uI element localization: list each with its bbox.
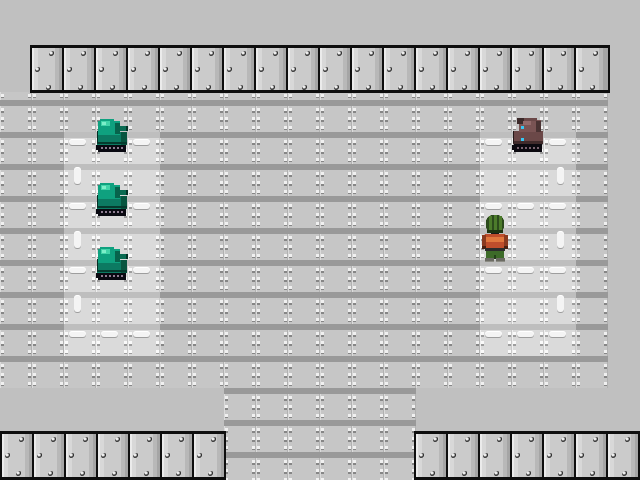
rivet-icon bbox=[165, 453, 171, 459]
rivet-icon bbox=[174, 85, 180, 91]
rivet-icon bbox=[558, 85, 564, 91]
floor-tile bbox=[384, 132, 416, 164]
floor-marking-horizontal bbox=[485, 139, 502, 145]
rivet-icon bbox=[209, 51, 215, 57]
floor-tile bbox=[576, 356, 608, 388]
floor-tile bbox=[352, 164, 384, 196]
rivet-icon bbox=[465, 437, 471, 443]
floor-tile bbox=[416, 132, 448, 164]
floor-tile bbox=[256, 132, 288, 164]
floor-tile bbox=[320, 100, 352, 132]
wall-panel bbox=[512, 434, 544, 477]
rivet-icon bbox=[179, 437, 185, 443]
floor-marking-horizontal bbox=[133, 139, 150, 145]
wall-panel bbox=[66, 434, 98, 477]
floor-tile bbox=[416, 228, 448, 260]
floor-tile-light bbox=[64, 324, 96, 356]
floor-tile-light bbox=[512, 292, 544, 324]
green-tank-sprite[interactable] bbox=[95, 245, 129, 281]
wall-panel bbox=[416, 48, 448, 90]
floor-tile bbox=[224, 260, 256, 292]
floor-tile bbox=[384, 452, 416, 480]
rivet-icon bbox=[78, 85, 84, 91]
floor-tile bbox=[576, 324, 608, 356]
floor-tile bbox=[192, 356, 224, 388]
wall-panel bbox=[2, 434, 34, 477]
rivet-icon bbox=[430, 85, 436, 91]
rivet-icon bbox=[241, 51, 247, 57]
floor-tile bbox=[384, 92, 416, 100]
floor-tile bbox=[256, 196, 288, 228]
rivet-icon bbox=[401, 51, 407, 57]
rivet-icon bbox=[133, 453, 139, 459]
floor-tile bbox=[224, 452, 256, 480]
floor-tile bbox=[224, 132, 256, 164]
floor-tile bbox=[256, 228, 288, 260]
floor-tile bbox=[480, 356, 512, 388]
floor-tile-light bbox=[512, 164, 544, 196]
wall-panel bbox=[160, 48, 192, 90]
rivet-icon bbox=[48, 471, 54, 477]
rivet-icon bbox=[163, 67, 169, 73]
wall-panel bbox=[96, 48, 128, 90]
floor-tile bbox=[448, 92, 480, 100]
rivet-icon bbox=[273, 51, 279, 57]
rivet-icon bbox=[366, 85, 372, 91]
floor-tile bbox=[352, 452, 384, 480]
floor-tile bbox=[448, 228, 480, 260]
rivet-icon bbox=[80, 471, 86, 477]
rivet-icon bbox=[211, 437, 217, 443]
floor-tile bbox=[352, 92, 384, 100]
wall-panel bbox=[98, 434, 130, 477]
rivet-icon bbox=[497, 437, 503, 443]
floor-tile bbox=[288, 100, 320, 132]
floor-tile bbox=[160, 292, 192, 324]
wall-panel bbox=[544, 48, 576, 90]
floor-tile bbox=[288, 228, 320, 260]
floor-tile bbox=[320, 420, 352, 452]
floor-tile bbox=[160, 92, 192, 100]
rivet-icon bbox=[142, 85, 148, 91]
rivet-icon bbox=[561, 437, 567, 443]
rivet-icon bbox=[558, 471, 564, 477]
floor-marking-horizontal bbox=[69, 267, 86, 273]
rivet-icon bbox=[208, 471, 214, 477]
rivet-icon bbox=[590, 85, 596, 91]
floor-tile bbox=[416, 324, 448, 356]
rivet-icon bbox=[46, 85, 52, 91]
wall-panel bbox=[512, 48, 544, 90]
rivet-icon bbox=[515, 453, 521, 459]
wall-panel bbox=[480, 48, 512, 90]
rivet-icon bbox=[227, 67, 233, 73]
wall-panel bbox=[480, 434, 512, 477]
rivet-icon bbox=[176, 471, 182, 477]
floor-tile bbox=[448, 100, 480, 132]
floor-tile bbox=[576, 164, 608, 196]
floor-tile-light bbox=[128, 228, 160, 260]
floor-tile bbox=[160, 132, 192, 164]
rivet-icon bbox=[131, 67, 137, 73]
wall-panel bbox=[352, 48, 384, 90]
floor-tile bbox=[32, 228, 64, 260]
rivet-icon bbox=[101, 453, 107, 459]
floor-tile-light bbox=[480, 164, 512, 196]
rivet-icon bbox=[49, 51, 55, 57]
floor-tile bbox=[0, 164, 32, 196]
floor-tile bbox=[512, 356, 544, 388]
floor-tile bbox=[32, 100, 64, 132]
wall-panel bbox=[608, 434, 640, 477]
rivet-icon bbox=[355, 67, 361, 73]
rivet-icon bbox=[590, 471, 596, 477]
rivet-icon bbox=[579, 67, 585, 73]
floor-tile bbox=[192, 164, 224, 196]
floor-marking-horizontal bbox=[517, 203, 534, 209]
floor-marking-horizontal bbox=[133, 331, 150, 337]
rivet-icon bbox=[270, 85, 276, 91]
wall-panel bbox=[256, 48, 288, 90]
floor-marking-vertical bbox=[74, 295, 81, 312]
floor-tile bbox=[288, 292, 320, 324]
floor-tile bbox=[32, 292, 64, 324]
floor-marking-horizontal bbox=[133, 267, 150, 273]
floor-tile bbox=[192, 132, 224, 164]
floor-tile bbox=[352, 100, 384, 132]
floor-tile bbox=[352, 228, 384, 260]
floor-tile-light bbox=[128, 260, 160, 292]
wall-panel bbox=[32, 48, 64, 90]
rivet-icon bbox=[430, 471, 436, 477]
rivet-icon bbox=[291, 67, 297, 73]
floor-marking-horizontal bbox=[549, 267, 566, 273]
wall-bottom-left bbox=[0, 431, 226, 480]
rivet-icon bbox=[547, 453, 553, 459]
floor-tile bbox=[224, 324, 256, 356]
rivet-icon bbox=[206, 85, 212, 91]
rivet-icon bbox=[611, 453, 617, 459]
floor-tile bbox=[224, 292, 256, 324]
floor-marking-vertical bbox=[557, 231, 564, 248]
rivet-icon bbox=[19, 437, 25, 443]
floor-tile-light bbox=[512, 228, 544, 260]
rivet-icon bbox=[177, 51, 183, 57]
floor-tile bbox=[416, 196, 448, 228]
rivet-icon bbox=[462, 85, 468, 91]
floor-marking-horizontal bbox=[69, 203, 86, 209]
floor-marking-horizontal bbox=[549, 331, 566, 337]
floor-tile bbox=[352, 324, 384, 356]
floor-tile bbox=[160, 228, 192, 260]
rivet-icon bbox=[494, 471, 500, 477]
floor-tile bbox=[320, 92, 352, 100]
floor-tile bbox=[32, 196, 64, 228]
floor-tile bbox=[576, 100, 608, 132]
wall-panel bbox=[192, 48, 224, 90]
rivet-icon bbox=[529, 51, 535, 57]
wall-panel bbox=[576, 434, 608, 477]
floor-tile bbox=[224, 420, 256, 452]
floor-tile bbox=[416, 356, 448, 388]
floor-tile bbox=[224, 196, 256, 228]
floor-tile-light bbox=[544, 324, 576, 356]
floor-tile bbox=[320, 388, 352, 420]
floor-tile bbox=[384, 356, 416, 388]
floor-marking-vertical bbox=[74, 167, 81, 184]
floor-tile bbox=[256, 292, 288, 324]
floor-tile bbox=[288, 132, 320, 164]
floor-marking-horizontal bbox=[549, 139, 566, 145]
floor-tile bbox=[320, 260, 352, 292]
rivet-icon bbox=[37, 453, 43, 459]
green-tank-sprite[interactable] bbox=[95, 181, 129, 217]
rivet-icon bbox=[51, 437, 57, 443]
floor-tile bbox=[160, 356, 192, 388]
floor-marking-horizontal bbox=[69, 139, 86, 145]
rivet-icon bbox=[451, 453, 457, 459]
rivet-icon bbox=[497, 51, 503, 57]
rivet-icon bbox=[99, 67, 105, 73]
floor-tile bbox=[544, 100, 576, 132]
floor-tile bbox=[32, 356, 64, 388]
floor-tile bbox=[448, 196, 480, 228]
floor-tile bbox=[384, 100, 416, 132]
wall-panel bbox=[64, 48, 96, 90]
rivet-icon bbox=[369, 51, 375, 57]
floor-tile bbox=[416, 100, 448, 132]
floor-tile bbox=[544, 356, 576, 388]
floor-extension bbox=[224, 388, 416, 480]
wall-panel bbox=[224, 48, 256, 90]
floor-tile bbox=[32, 164, 64, 196]
floor-tile-light bbox=[96, 292, 128, 324]
floor-tile bbox=[384, 228, 416, 260]
wall-panel bbox=[194, 434, 226, 477]
floor-tile bbox=[384, 292, 416, 324]
floor-tile bbox=[448, 292, 480, 324]
floor-tile bbox=[320, 356, 352, 388]
floor-tile bbox=[192, 92, 224, 100]
rivet-icon bbox=[419, 453, 425, 459]
floor-tile bbox=[224, 92, 256, 100]
rivet-icon bbox=[483, 67, 489, 73]
wall-panel bbox=[576, 48, 610, 90]
rivet-icon bbox=[547, 67, 553, 73]
floor-tile bbox=[192, 100, 224, 132]
floor-tile bbox=[256, 260, 288, 292]
floor-tile-light bbox=[512, 260, 544, 292]
floor-tile-light bbox=[64, 196, 96, 228]
floor-tile bbox=[384, 324, 416, 356]
rivet-icon bbox=[259, 67, 265, 73]
floor-tile bbox=[256, 452, 288, 480]
floor-tile-light bbox=[128, 132, 160, 164]
floor-tile-light bbox=[128, 196, 160, 228]
rivet-icon bbox=[526, 85, 532, 91]
floor-tile bbox=[352, 388, 384, 420]
floor-tile bbox=[128, 356, 160, 388]
floor-tile bbox=[128, 100, 160, 132]
floor-tile bbox=[0, 356, 32, 388]
wall-panel bbox=[448, 434, 480, 477]
floor-tile bbox=[192, 196, 224, 228]
floor-tile bbox=[416, 260, 448, 292]
rivet-icon bbox=[197, 453, 203, 459]
floor-tile bbox=[576, 292, 608, 324]
floor-tile bbox=[384, 388, 416, 420]
floor-tile bbox=[64, 100, 96, 132]
rivet-icon bbox=[451, 67, 457, 73]
floor-tile bbox=[352, 292, 384, 324]
floor-tile-light bbox=[128, 324, 160, 356]
floor-tile bbox=[0, 196, 32, 228]
rivet-icon bbox=[323, 67, 329, 73]
floor-tile bbox=[160, 260, 192, 292]
floor-tile-light bbox=[128, 164, 160, 196]
rivet-icon bbox=[16, 471, 22, 477]
rivet-icon bbox=[147, 437, 153, 443]
floor-tile bbox=[416, 92, 448, 100]
wall-panel bbox=[320, 48, 352, 90]
rivet-icon bbox=[69, 453, 75, 459]
floor-tile bbox=[0, 100, 32, 132]
game-viewport[interactable] bbox=[0, 0, 640, 480]
rivet-icon bbox=[526, 471, 532, 477]
floor-tile bbox=[448, 164, 480, 196]
floor-tile bbox=[288, 92, 320, 100]
floor-tile bbox=[256, 92, 288, 100]
floor-tile bbox=[256, 100, 288, 132]
floor-marking-horizontal bbox=[101, 331, 118, 337]
brown-tank-sprite[interactable] bbox=[511, 117, 545, 153]
player-character-sprite[interactable] bbox=[482, 212, 508, 262]
floor-tile bbox=[320, 164, 352, 196]
floor-tile bbox=[64, 356, 96, 388]
wall-panel bbox=[416, 434, 448, 477]
floor-tile bbox=[160, 100, 192, 132]
floor-tile bbox=[352, 196, 384, 228]
floor-tile bbox=[512, 92, 544, 100]
floor-tile bbox=[288, 420, 320, 452]
floor-marking-horizontal bbox=[517, 267, 534, 273]
floor-tile bbox=[576, 92, 608, 100]
floor-tile bbox=[320, 324, 352, 356]
floor-tile bbox=[320, 228, 352, 260]
floor-tile bbox=[256, 356, 288, 388]
floor-tile bbox=[480, 100, 512, 132]
floor-tile bbox=[320, 452, 352, 480]
floor-tile bbox=[0, 92, 32, 100]
rivet-icon bbox=[67, 67, 73, 73]
rivet-icon bbox=[433, 51, 439, 57]
rivet-icon bbox=[145, 51, 151, 57]
rivet-icon bbox=[337, 51, 343, 57]
floor-tile bbox=[576, 132, 608, 164]
rivet-icon bbox=[561, 51, 567, 57]
floor-tile bbox=[448, 260, 480, 292]
floor-tile bbox=[160, 164, 192, 196]
floor-tile bbox=[384, 164, 416, 196]
floor-tile bbox=[32, 324, 64, 356]
green-tank-sprite[interactable] bbox=[95, 117, 129, 153]
floor-tile-light bbox=[512, 324, 544, 356]
floor-tile-light bbox=[544, 196, 576, 228]
rivet-icon bbox=[625, 437, 631, 443]
floor-tile bbox=[288, 324, 320, 356]
floor-tile bbox=[416, 164, 448, 196]
wall-panel bbox=[288, 48, 320, 90]
rivet-icon bbox=[144, 471, 150, 477]
floor-tile bbox=[160, 196, 192, 228]
floor-tile bbox=[64, 92, 96, 100]
floor-tile bbox=[288, 356, 320, 388]
floor-tile-light bbox=[480, 132, 512, 164]
floor-tile bbox=[256, 324, 288, 356]
floor-tile bbox=[224, 356, 256, 388]
floor-marking-horizontal bbox=[517, 331, 534, 337]
wall-panel bbox=[130, 434, 162, 477]
rivet-icon bbox=[238, 85, 244, 91]
floor-tile bbox=[544, 92, 576, 100]
rivet-icon bbox=[35, 67, 41, 73]
floor-tile bbox=[288, 164, 320, 196]
floor-tile bbox=[480, 92, 512, 100]
rivet-icon bbox=[387, 67, 393, 73]
rivet-icon bbox=[81, 51, 87, 57]
floor-tile-light bbox=[544, 132, 576, 164]
rivet-icon bbox=[195, 67, 201, 73]
floor-tile bbox=[448, 356, 480, 388]
floor-tile-light bbox=[64, 260, 96, 292]
floor-tile-light bbox=[128, 292, 160, 324]
floor-tile bbox=[576, 228, 608, 260]
floor-marking-horizontal bbox=[133, 203, 150, 209]
rivet-icon bbox=[515, 67, 521, 73]
wall-bottom-right bbox=[414, 431, 640, 480]
floor-tile bbox=[352, 260, 384, 292]
floor-marking-vertical bbox=[557, 295, 564, 312]
floor-tile bbox=[0, 132, 32, 164]
floor-tile bbox=[256, 164, 288, 196]
rivet-icon bbox=[593, 51, 599, 57]
rivet-icon bbox=[112, 471, 118, 477]
floor-tile bbox=[448, 132, 480, 164]
rivet-icon bbox=[305, 51, 311, 57]
floor-tile bbox=[224, 164, 256, 196]
rivet-icon bbox=[115, 437, 121, 443]
floor-tile bbox=[32, 92, 64, 100]
floor-tile bbox=[0, 324, 32, 356]
floor-tile bbox=[96, 356, 128, 388]
rivet-icon bbox=[433, 437, 439, 443]
rivet-icon bbox=[419, 67, 425, 73]
rivet-icon bbox=[465, 51, 471, 57]
rivet-icon bbox=[302, 85, 308, 91]
wall-panel bbox=[384, 48, 416, 90]
floor-marking-horizontal bbox=[549, 203, 566, 209]
floor-tile bbox=[352, 356, 384, 388]
floor-tile bbox=[224, 228, 256, 260]
rivet-icon bbox=[113, 51, 119, 57]
rivet-icon bbox=[494, 85, 500, 91]
rivet-icon bbox=[398, 85, 404, 91]
wall-panel bbox=[162, 434, 194, 477]
floor-tile-light bbox=[544, 260, 576, 292]
floor-marking-horizontal bbox=[69, 331, 86, 337]
floor-tile bbox=[192, 324, 224, 356]
wall-panel bbox=[448, 48, 480, 90]
